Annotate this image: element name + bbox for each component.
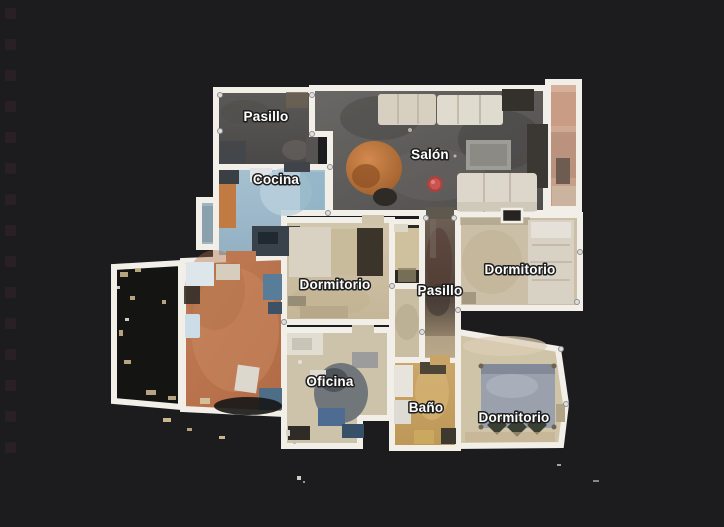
wall-handle[interactable] [282, 320, 287, 325]
wall-handle[interactable] [456, 308, 461, 313]
wall-handle[interactable] [559, 347, 564, 352]
texture-blob [441, 428, 456, 444]
texture-blob [297, 476, 301, 480]
texture-blob [5, 318, 16, 329]
texture-blob [431, 180, 435, 184]
room-label-oficina: Oficina [306, 374, 353, 389]
texture-blob [303, 481, 305, 483]
current-position-marker [427, 176, 443, 192]
counter [219, 184, 236, 228]
texture-blob [187, 428, 192, 431]
texture-blob [202, 206, 213, 242]
texture-blob [168, 396, 176, 400]
texture-blob [557, 464, 561, 466]
sofa [378, 94, 436, 125]
door-niche [502, 209, 522, 222]
texture-blob [200, 398, 210, 404]
appliance [219, 170, 239, 184]
texture-blob [465, 432, 555, 442]
wardrobe [357, 228, 383, 276]
texture-blob [286, 92, 308, 108]
texture-blob [146, 390, 156, 395]
texture-blob [342, 424, 364, 438]
texture-blob [282, 140, 310, 160]
wall-handle[interactable] [452, 216, 457, 221]
texture-blob [398, 268, 416, 282]
texture-blob [130, 296, 135, 300]
texture-blob [5, 194, 16, 205]
texture-blob [463, 336, 547, 356]
texture-blob [298, 360, 302, 364]
texture-blob [220, 141, 246, 163]
room-label-pasillo-center: Pasillo [418, 283, 463, 298]
texture-blob [219, 436, 225, 439]
texture-blob [5, 442, 16, 453]
texture-blob [5, 70, 16, 81]
texture-blob [5, 349, 16, 360]
texture-blob [462, 292, 476, 304]
texture-blob [163, 418, 171, 422]
texture-blob [162, 300, 166, 304]
texture-blob [5, 8, 16, 19]
room-label-bano: Baño [409, 400, 444, 415]
wall-handle[interactable] [310, 132, 315, 137]
texture-blob [120, 272, 128, 277]
chair [234, 365, 259, 394]
texture-blob [5, 132, 16, 143]
texture-blob [479, 425, 484, 430]
texture-blob [556, 404, 565, 422]
texture-blob [556, 158, 570, 184]
texture-blob [292, 338, 312, 350]
texture-blob [5, 163, 16, 174]
door-opening [284, 162, 310, 172]
room-label-dormitorio-left: Dormitorio [300, 277, 371, 292]
texture-blob [481, 364, 555, 374]
texture-blob [457, 202, 537, 211]
texture-blob [470, 144, 507, 166]
room-label-pasillo-top: Pasillo [244, 109, 289, 124]
cabinet [502, 89, 534, 111]
texture-blob [293, 440, 296, 444]
texture-blob [414, 430, 434, 444]
texture-blob [454, 155, 457, 158]
texture-blob [288, 296, 306, 306]
wall-handle[interactable] [575, 300, 580, 305]
texture-blob [300, 172, 324, 210]
wall-handle[interactable] [564, 402, 569, 407]
texture-blob [117, 286, 120, 289]
door-opening [306, 137, 318, 164]
texture-blob [430, 218, 436, 258]
door-opening [430, 355, 450, 365]
texture-blob [5, 256, 16, 267]
wall-handle[interactable] [420, 330, 425, 335]
texture-blob [5, 39, 16, 50]
texture-blob [268, 302, 282, 314]
texture-blob [552, 425, 557, 430]
chair [373, 188, 397, 206]
texture-blob [552, 186, 576, 206]
floorplan-canvas[interactable]: Pasillo Salón Cocina Dormitorio Pasillo … [0, 0, 724, 527]
sofa [437, 95, 503, 125]
texture-blob [5, 380, 16, 391]
texture-blob [425, 336, 455, 358]
texture-blob [5, 411, 16, 422]
room-label-dormitorio-right: Dormitorio [485, 262, 556, 277]
texture-blob [125, 318, 129, 321]
texture-blob [5, 287, 16, 298]
sink [394, 365, 413, 397]
texture-blob [5, 101, 16, 112]
texture-blob [318, 408, 345, 426]
texture-blob [263, 274, 282, 300]
floorplan-viewport[interactable]: Pasillo Salón Cocina Dormitorio Pasillo … [0, 0, 724, 527]
room-label-salon: Salón [411, 147, 449, 162]
wall-handle[interactable] [218, 129, 223, 134]
door-opening [352, 325, 374, 335]
texture-blob [186, 262, 214, 286]
bed [331, 229, 357, 275]
wall-handle[interactable] [328, 165, 333, 170]
pillow [531, 222, 571, 238]
mat [185, 314, 200, 338]
wall-handle[interactable] [310, 93, 315, 98]
texture-blob [124, 360, 131, 364]
wall-handle[interactable] [390, 284, 395, 289]
vestibulo-texture [395, 304, 419, 340]
room-label-cocina: Cocina [253, 172, 300, 187]
texture-blob [352, 164, 380, 188]
texture-blob [135, 268, 141, 272]
texture-blob [286, 430, 290, 436]
door-opening [426, 207, 454, 219]
galeria-texture [551, 92, 576, 206]
texture-blob [593, 480, 599, 482]
texture-blob [288, 426, 310, 440]
left-edge-artifact-strip [5, 8, 16, 453]
texture-blob [352, 352, 378, 368]
bed [289, 227, 331, 277]
room-label-dormitorio-bottom: Dormitorio [479, 410, 550, 425]
texture-blob [394, 224, 408, 232]
wall-handle[interactable] [424, 216, 429, 221]
bench [300, 306, 348, 318]
texture-blob [430, 179, 441, 190]
door-opening [226, 251, 256, 262]
wall-handle[interactable] [218, 93, 223, 98]
texture-blob [184, 286, 200, 304]
texture-blob [216, 264, 240, 280]
texture-blob [551, 92, 576, 126]
texture-blob [119, 330, 123, 336]
texture-blob [258, 232, 278, 244]
wall-handle[interactable] [578, 250, 583, 255]
texture-blob [395, 228, 419, 270]
texture-blob [552, 364, 557, 369]
wall-handle[interactable] [326, 211, 331, 216]
texture-blob [214, 397, 282, 415]
texture-blob [486, 374, 538, 398]
texture-blob [5, 225, 16, 236]
door-opening [362, 215, 384, 225]
room-floor-terraza-exterior[interactable] [114, 263, 181, 407]
texture-blob [479, 364, 484, 369]
texture-blob [408, 128, 412, 132]
